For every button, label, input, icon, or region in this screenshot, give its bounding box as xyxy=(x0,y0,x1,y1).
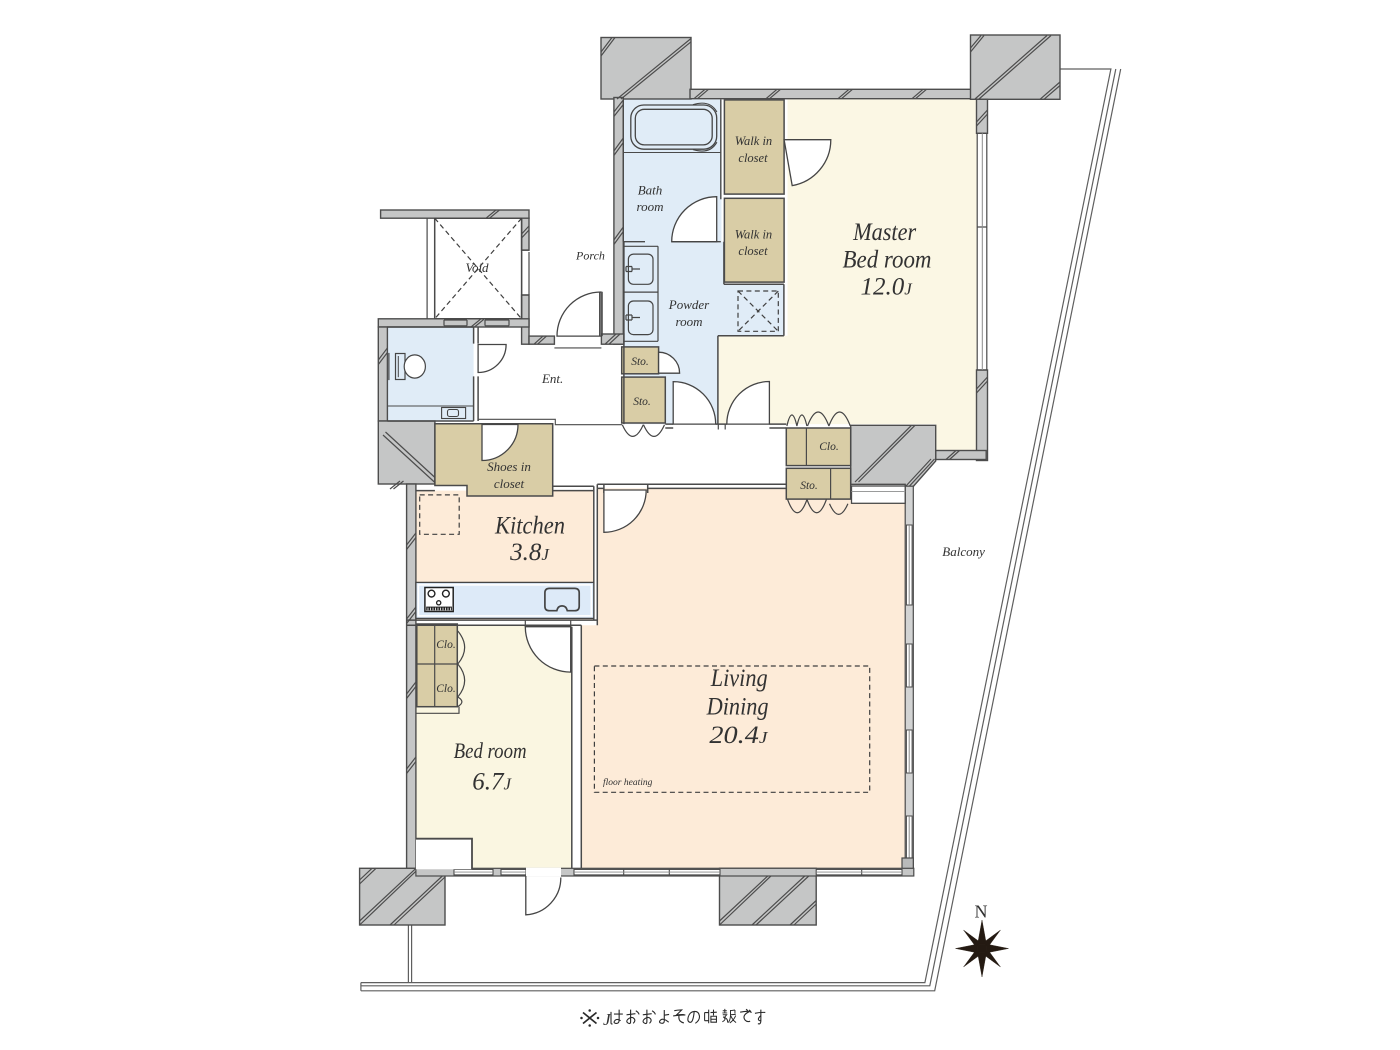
svg-text:Clo.: Clo. xyxy=(436,639,456,651)
svg-text:Powder: Powder xyxy=(668,297,710,312)
svg-text:room: room xyxy=(637,199,664,214)
svg-text:closet: closet xyxy=(738,244,768,258)
svg-text:Bed room: Bed room xyxy=(843,247,932,274)
svg-text:Master: Master xyxy=(852,219,916,246)
svg-text:Dining: Dining xyxy=(706,694,769,721)
svg-text:Walk in: Walk in xyxy=(735,134,772,148)
svg-text:Sto.: Sto. xyxy=(800,480,818,492)
svg-text:Void: Void xyxy=(465,260,489,275)
svg-text:Shoes in: Shoes in xyxy=(487,459,531,474)
svg-text:Balcony: Balcony xyxy=(942,544,985,559)
svg-text:Sto.: Sto. xyxy=(633,396,651,408)
svg-text:Ent.: Ent. xyxy=(541,371,563,386)
svg-text:Walk in: Walk in xyxy=(735,227,772,241)
svg-text:Sto.: Sto. xyxy=(631,356,649,368)
svg-text:Bed room: Bed room xyxy=(454,738,527,763)
svg-text:Clo.: Clo. xyxy=(819,441,839,453)
svg-text:N: N xyxy=(975,902,988,922)
svg-text:floor heating: floor heating xyxy=(603,777,653,788)
svg-text:Kitchen: Kitchen xyxy=(494,513,565,540)
svg-text:Bath: Bath xyxy=(638,183,663,198)
svg-text:Porch: Porch xyxy=(575,249,605,263)
svg-text:closet: closet xyxy=(738,151,768,165)
svg-text:Living: Living xyxy=(710,665,768,692)
svg-text:Clo.: Clo. xyxy=(436,683,456,695)
svg-text:room: room xyxy=(676,314,703,329)
svg-text:closet: closet xyxy=(494,476,525,491)
